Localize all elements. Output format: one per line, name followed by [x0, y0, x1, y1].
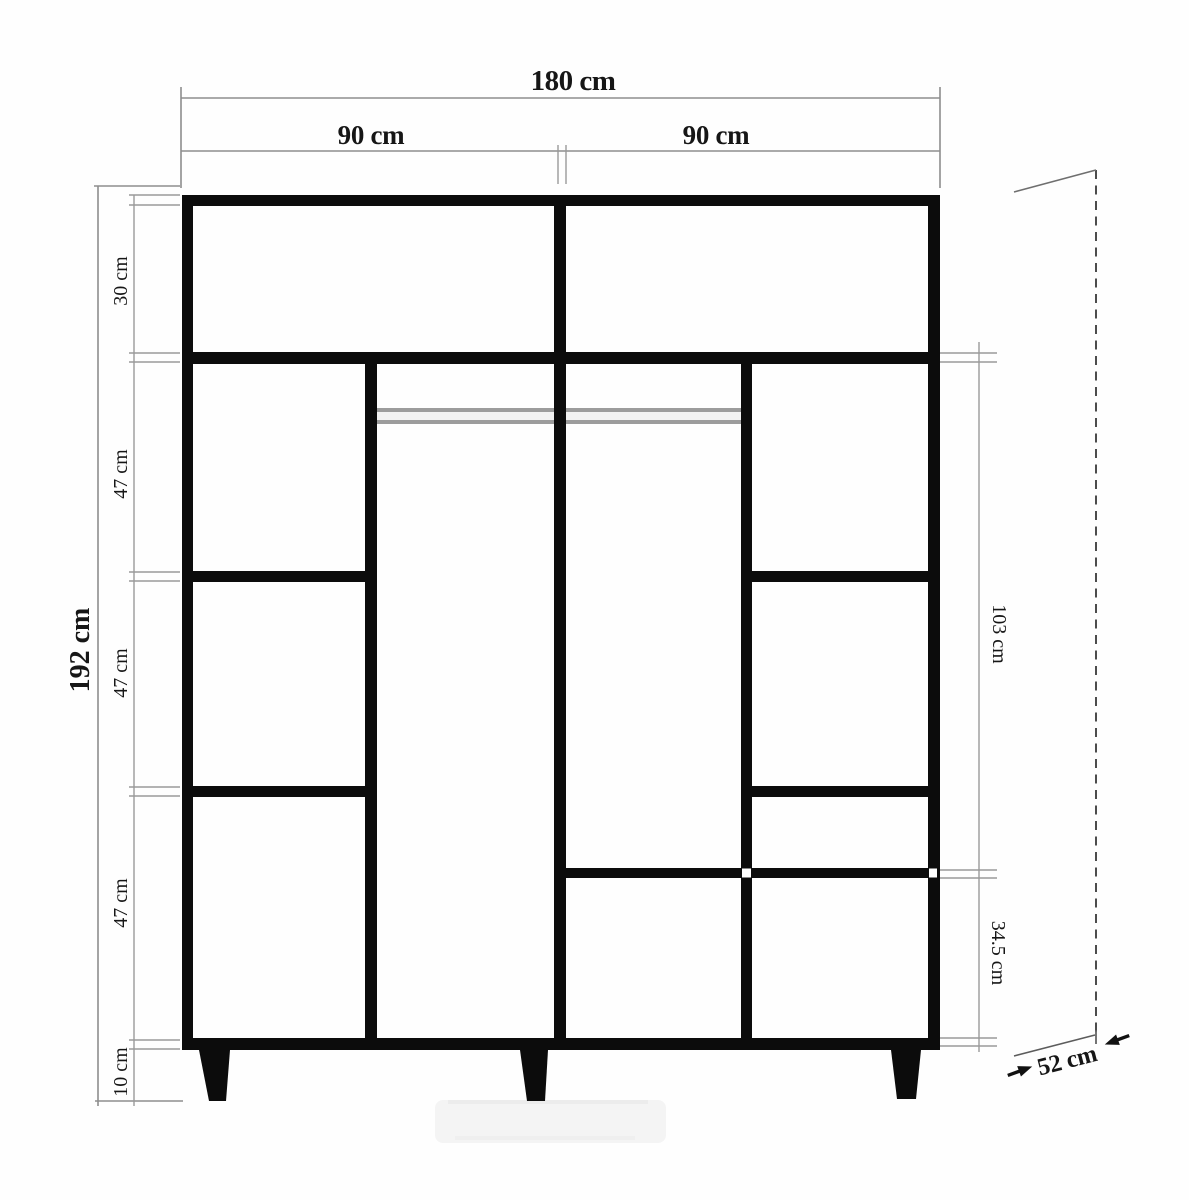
svg-text:47 cm: 47 cm: [110, 449, 132, 499]
svg-text:103 cm: 103 cm: [988, 604, 1010, 664]
svg-text:10 cm: 10 cm: [110, 1047, 132, 1097]
svg-text:34.5 cm: 34.5 cm: [987, 921, 1009, 986]
svg-text:47 cm: 47 cm: [110, 648, 132, 698]
svg-text:180 cm: 180 cm: [531, 65, 616, 97]
svg-text:90 cm: 90 cm: [338, 120, 406, 150]
svg-text:47 cm: 47 cm: [110, 878, 132, 928]
svg-text:192 cm: 192 cm: [65, 608, 96, 693]
svg-text:30 cm: 30 cm: [110, 256, 132, 306]
svg-text:90 cm: 90 cm: [683, 120, 751, 150]
